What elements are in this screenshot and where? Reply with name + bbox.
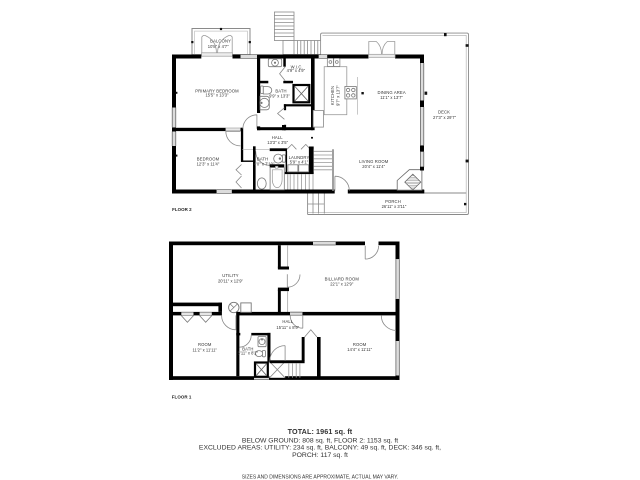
svg-text:12'3" x 11'4": 12'3" x 11'4"	[197, 161, 220, 166]
svg-text:4'9" x 4'9": 4'9" x 4'9"	[287, 68, 306, 73]
svg-text:20'11" x 12'9": 20'11" x 12'9"	[218, 279, 244, 284]
svg-text:FLOOR 1: FLOOR 1	[172, 394, 192, 399]
svg-text:15'11" x 8'9": 15'11" x 8'9"	[276, 325, 299, 330]
svg-text:FLOOR 2: FLOOR 2	[172, 207, 192, 212]
svg-text:5'9" x 4'1": 5'9" x 4'1"	[290, 159, 309, 164]
svg-text:DECK: DECK	[438, 109, 450, 114]
svg-text:HALL: HALL	[282, 319, 294, 324]
svg-text:15'5" x 13'3": 15'5" x 13'3"	[205, 93, 229, 98]
svg-text:KITCHEN: KITCHEN	[330, 86, 335, 105]
svg-text:EXCLUDED AREAS: UTILITY: 234 s: EXCLUDED AREAS: UTILITY: 234 sq. ft, BAL…	[199, 445, 441, 452]
svg-text:13'3" x 3'5": 13'3" x 3'5"	[267, 140, 288, 145]
svg-text:9'9" x 13'3": 9'9" x 13'3"	[269, 94, 290, 99]
svg-text:BELOW GROUND: 808 sq. ft, FLOO: BELOW GROUND: 808 sq. ft, FLOOR 2: 1153 …	[242, 437, 398, 444]
svg-text:SIZES AND DIMENSIONS ARE APPRO: SIZES AND DIMENSIONS ARE APPROXIMATE, AC…	[242, 475, 399, 480]
svg-text:TOTAL: 1961 sq. ft: TOTAL: 1961 sq. ft	[288, 427, 353, 436]
svg-text:PORCH: 117 sq. ft: PORCH: 117 sq. ft	[292, 452, 348, 459]
svg-text:26'11" x 3'11": 26'11" x 3'11"	[382, 204, 407, 209]
svg-text:UTILITY: UTILITY	[222, 273, 239, 278]
svg-text:27'3" x 29'7": 27'3" x 29'7"	[433, 115, 457, 120]
svg-text:4'0" x 7'10": 4'0" x 7'10"	[254, 161, 275, 166]
svg-text:14'4" x 11'11": 14'4" x 11'11"	[347, 347, 372, 352]
svg-text:22'1" x 12'9": 22'1" x 12'9"	[330, 281, 354, 286]
svg-text:20'4" x 11'4": 20'4" x 11'4"	[362, 164, 385, 169]
svg-text:9'7" x 13'7": 9'7" x 13'7"	[336, 85, 341, 106]
svg-text:5'11" x 8'2": 5'11" x 8'2"	[238, 350, 259, 355]
svg-text:11'1" x 13'7": 11'1" x 13'7"	[380, 95, 403, 100]
svg-text:11'2" x 11'11": 11'2" x 11'11"	[192, 347, 217, 352]
